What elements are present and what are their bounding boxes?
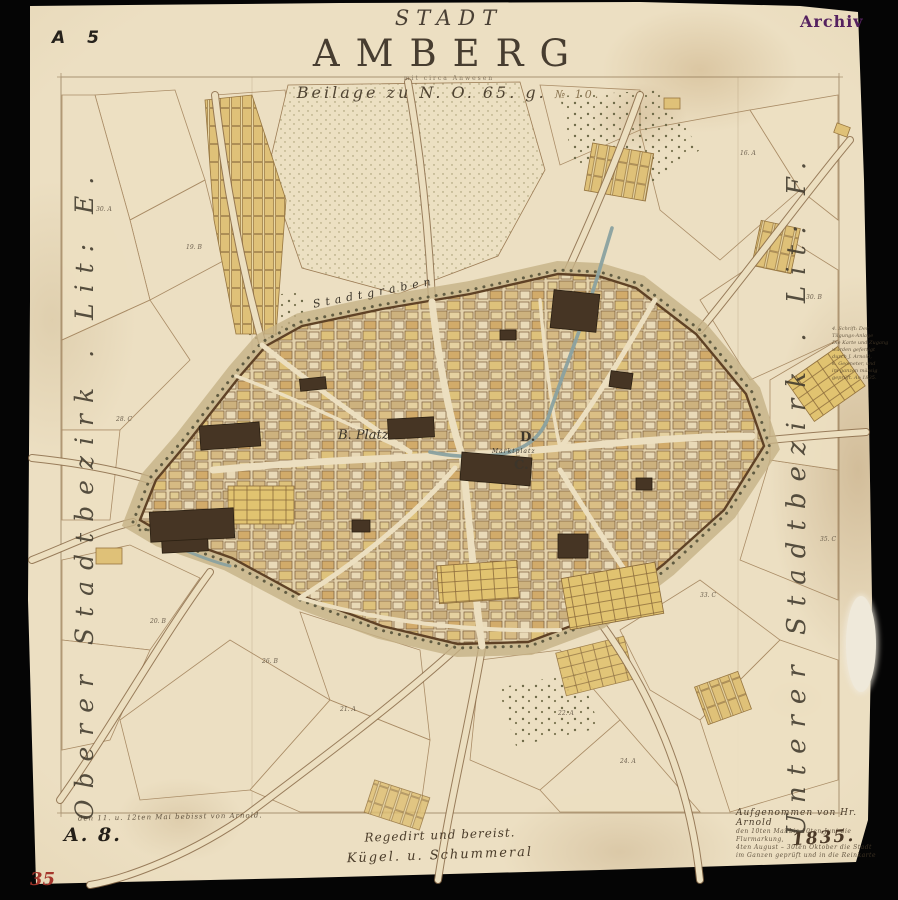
margin-annotation: 4. Schrift: DerTilgungs-AnlageDie Karte … (832, 326, 878, 382)
title-kicker: STADT (0, 6, 898, 30)
margin-annotation-line: geprüft. Ao 1835. (832, 375, 878, 382)
title-block: STADT AMBERG mit circa Anwesen Beilage z… (0, 6, 898, 102)
reference-suffix: № 10. (555, 88, 601, 101)
title-subtext: mit circa Anwesen (0, 75, 898, 82)
survey-note-title: Aufgenommen von Hr. Arnold (736, 808, 886, 828)
district-letter-d: D. (520, 430, 535, 445)
reference-text: Beilage zu N. O. 65. g. (297, 83, 547, 102)
district-label-right: Unterer Stadtbezirk . Lit: F. (782, 100, 812, 836)
scanned-map-photo: STADT AMBERG mit circa Anwesen Beilage z… (0, 0, 898, 900)
margin-annotation-line: k. Geometer, und (832, 361, 878, 368)
title-reference: Beilage zu N. O. 65. g. № 10. (0, 83, 898, 102)
margin-annotation-line: 4. Schrift: Der (832, 326, 878, 333)
district-label-left: Oberer Stadtbezirk . Lit: E. (70, 108, 99, 820)
margin-annotation-line: im ganzen mässig (832, 368, 878, 375)
margin-annotation-line: durch J. Arnold, (832, 354, 878, 361)
margin-annotation-line: Die Karte und Zugang (832, 340, 878, 347)
archive-stamp: Archiv (800, 12, 864, 31)
inventory-mark: A. 8. (64, 824, 122, 846)
square-b-label: B. Platz (338, 428, 389, 443)
heath-stippled-area (268, 82, 545, 294)
market-square-label: Marktplatz (492, 448, 536, 455)
signature-block: Regedirt und bereist. Kügel. u. Schummer… (290, 828, 590, 863)
margin-annotation-line: wurden gefertigt (832, 347, 878, 354)
red-archive-number: 35 (30, 869, 55, 890)
page-title: AMBERG (0, 32, 898, 75)
district-letter-c: C. (514, 458, 529, 473)
margin-annotation-line: Tilgungs-Anlage (832, 333, 878, 340)
survey-note-line: im Ganzen geprüft und in die Reinkarte (736, 852, 886, 860)
sheet-reference-stamp: A 5 (52, 28, 107, 48)
city-map-drawing (0, 0, 898, 900)
